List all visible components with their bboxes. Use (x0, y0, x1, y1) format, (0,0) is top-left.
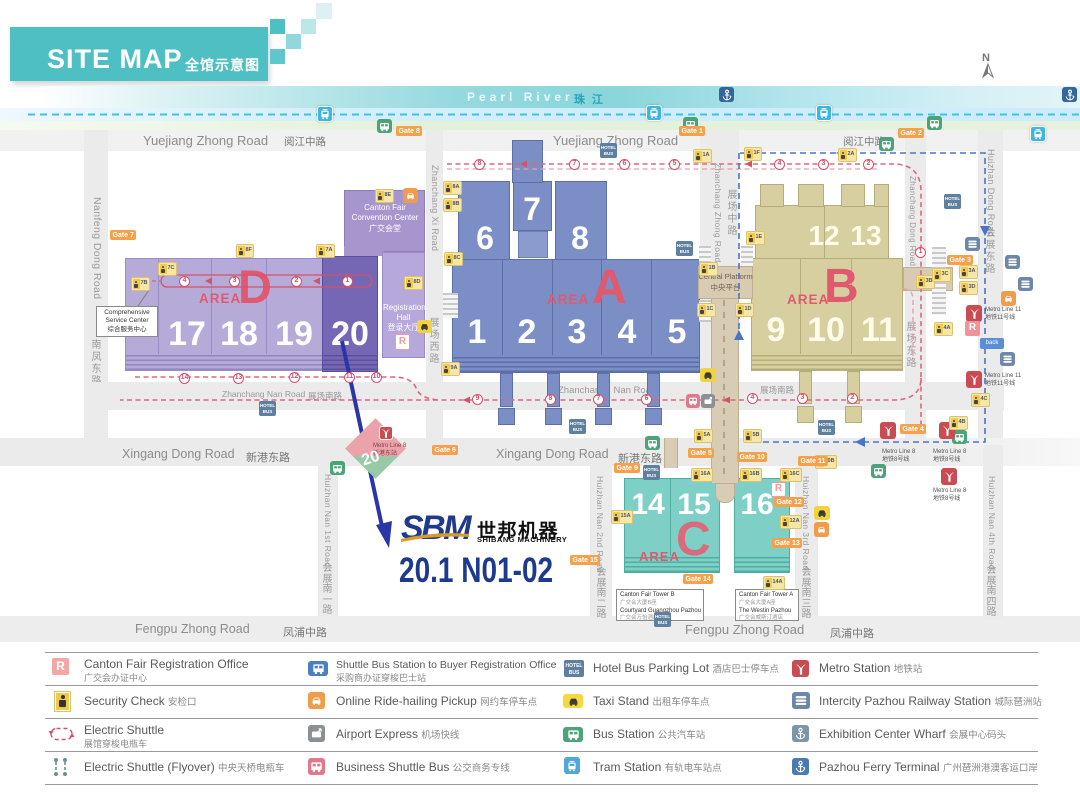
svg-text:SBM: SBM (401, 509, 472, 547)
